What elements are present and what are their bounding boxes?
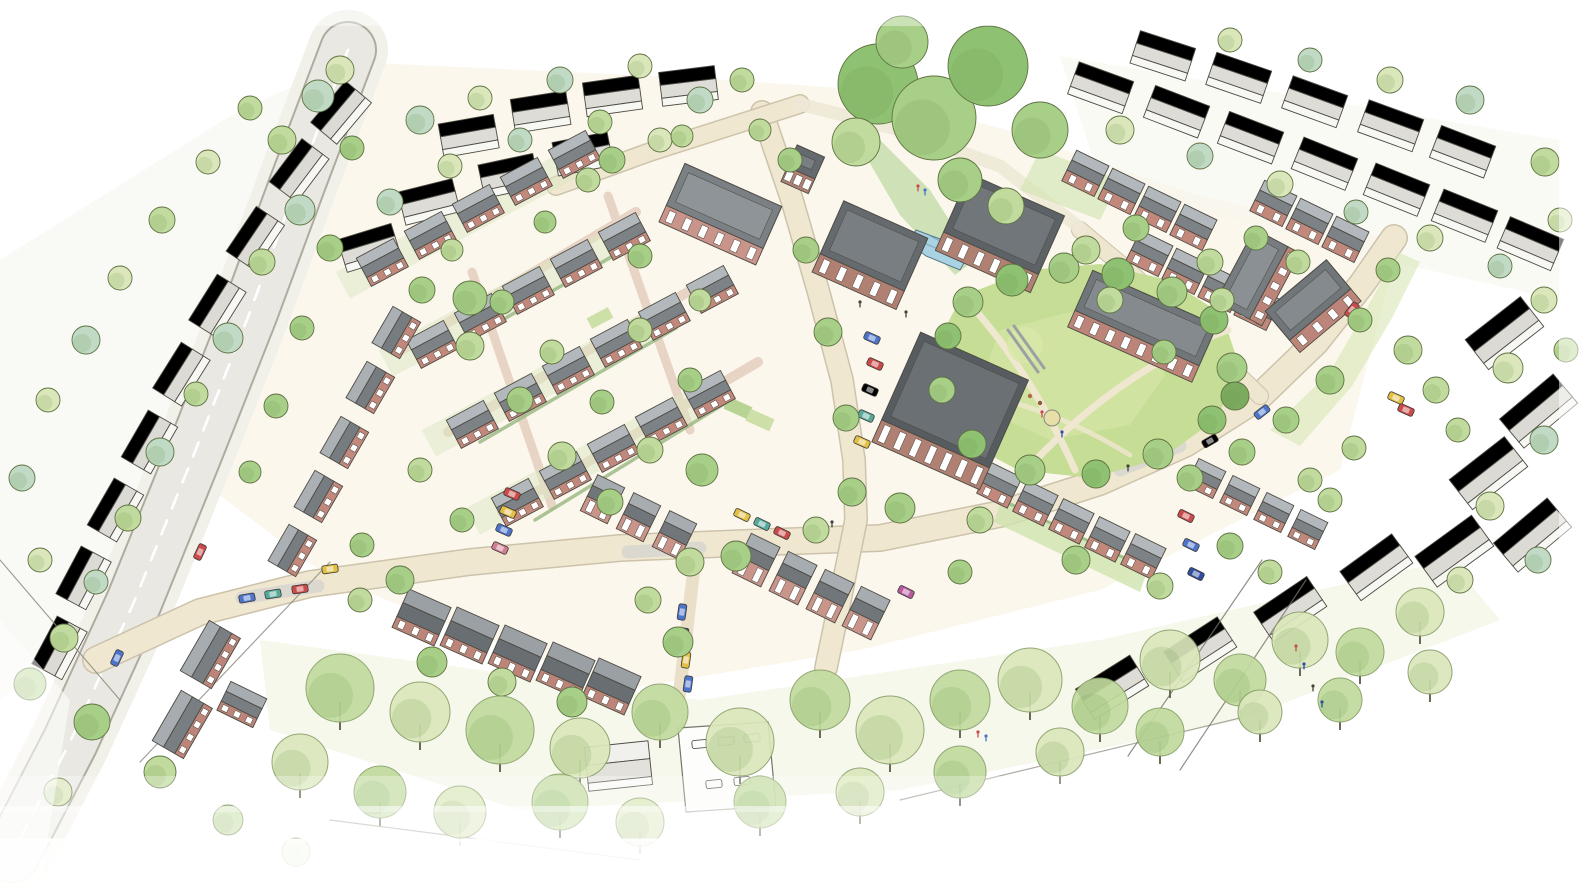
car (683, 676, 693, 693)
building-house (152, 690, 212, 758)
car (292, 584, 309, 594)
car (322, 564, 339, 574)
building-house (582, 75, 642, 116)
masterplan-illustration (0, 0, 1583, 887)
car (677, 604, 687, 621)
masterplan-svg (0, 0, 1583, 887)
building-house (1288, 509, 1328, 549)
car (1397, 403, 1415, 417)
building-house (217, 681, 267, 727)
car (1187, 567, 1205, 581)
car (1387, 391, 1405, 405)
